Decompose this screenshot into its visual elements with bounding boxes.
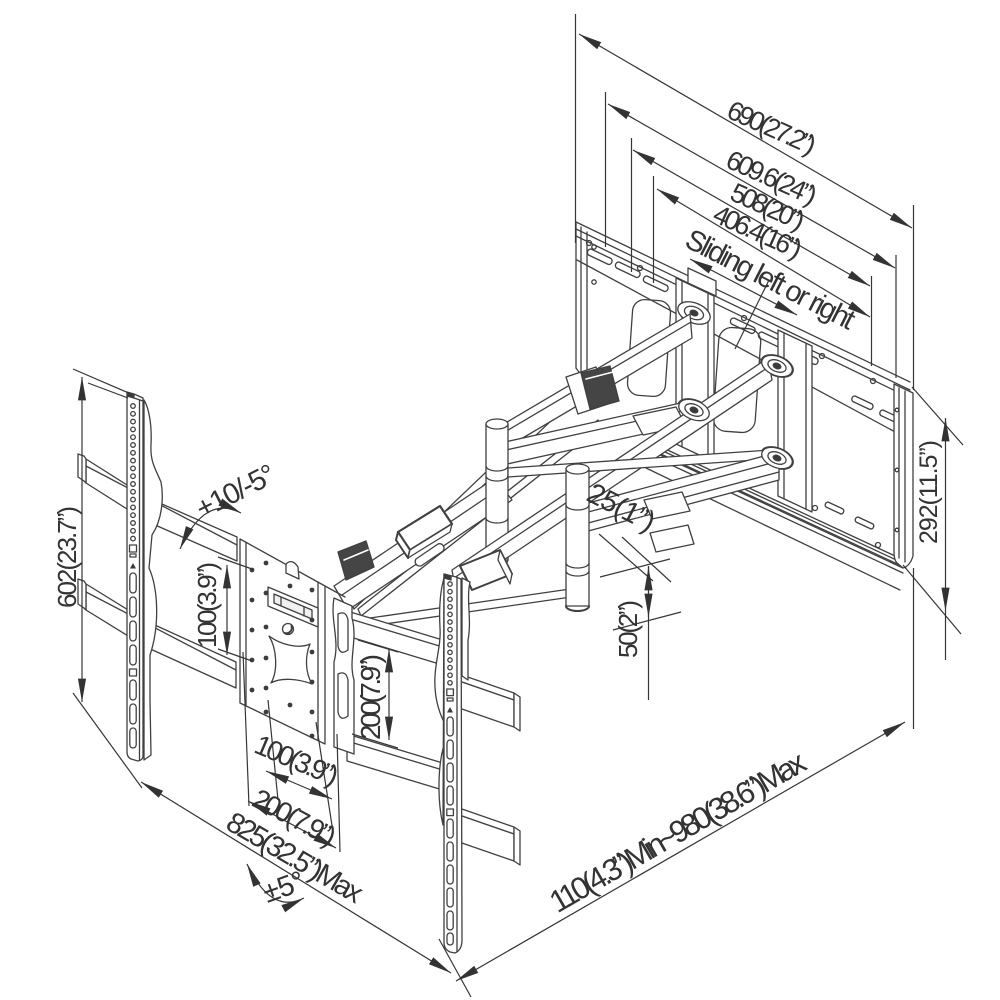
- svg-text:292(11.5”): 292(11.5”): [915, 440, 943, 544]
- svg-text:200(7.9”): 200(7.9”): [355, 654, 386, 740]
- svg-text:602(23.7”): 602(23.7”): [52, 506, 82, 608]
- svg-text:50(2”): 50(2”): [613, 600, 643, 658]
- svg-text:100(3.9”): 100(3.9”): [192, 562, 222, 648]
